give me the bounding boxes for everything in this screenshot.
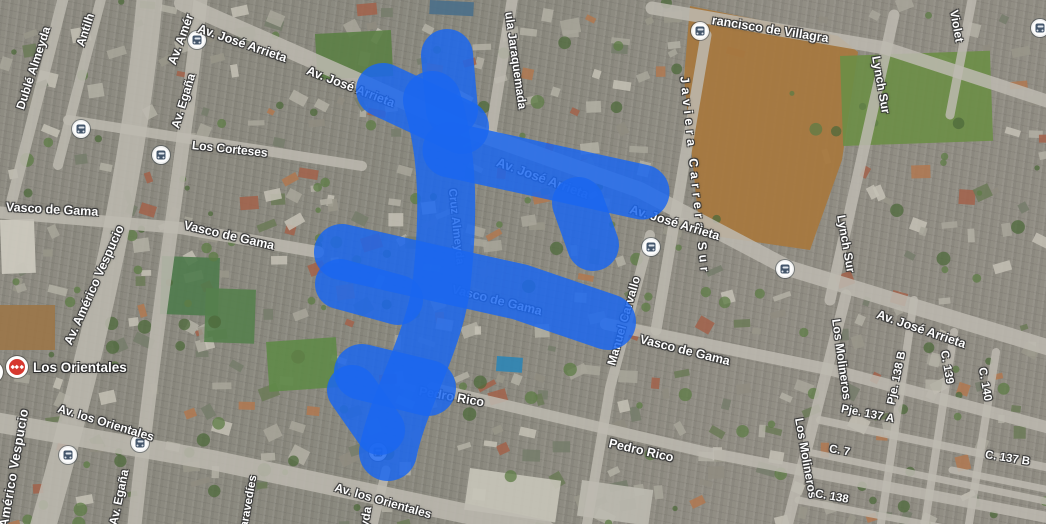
bus-stop-icon[interactable]	[1033, 21, 1046, 36]
bus-glyph	[157, 151, 166, 160]
bus-stop-icon[interactable]	[644, 240, 659, 255]
street-label: Vasco de Gama	[183, 219, 276, 252]
metro-logo-diamond	[20, 365, 24, 369]
bus-glyph	[1036, 24, 1045, 33]
street-label: Av. los Orientales	[333, 481, 432, 520]
street-label: Pje. 137 A	[840, 404, 895, 426]
street-label: Av. José Arrieta	[628, 203, 721, 242]
street-label: Pje. 138 B	[886, 350, 909, 406]
street-label: Av. Egaña	[107, 468, 131, 524]
street-label: C. 7	[828, 444, 851, 459]
street-label: Lynch Sur	[835, 214, 857, 273]
bus-stop-icon[interactable]	[61, 448, 76, 463]
street-label: Los Molineros	[830, 318, 853, 400]
metro-logo-diamond	[15, 365, 19, 369]
street-label: C. 140	[975, 367, 992, 402]
street-label: C. 137 B	[984, 450, 1031, 468]
street-label: Javiera Carrera Sur	[678, 76, 711, 277]
bus-stop-icon[interactable]	[371, 445, 386, 460]
bus-glyph	[647, 243, 656, 252]
street-label: Pedro Rico	[608, 437, 675, 464]
street-label: C. 139	[937, 350, 954, 385]
street-label: rancisco de Villagra	[711, 14, 829, 45]
bus-glyph	[696, 27, 705, 36]
bus-glyph	[77, 125, 86, 134]
street-label: C. 138	[814, 489, 849, 506]
street-label: Manuel Carvallo	[605, 275, 642, 367]
street-label: Los Molineros	[793, 417, 819, 499]
metro-station-icon[interactable]	[0, 361, 3, 383]
tree-texture	[11, 0, 1046, 524]
bus-glyph	[193, 36, 202, 45]
bus-stop-icon[interactable]	[778, 262, 793, 277]
bus-stop-icon[interactable]	[154, 148, 169, 163]
metro-logo-diamond	[11, 365, 15, 369]
street-label: Violet	[948, 9, 965, 43]
street-label: Lynch Sur	[870, 55, 892, 114]
street-label: Américo Vespucio	[0, 407, 30, 524]
street-label: Cruz Almeyda	[445, 188, 464, 265]
street-label: Los Corteses	[191, 139, 268, 159]
bus-glyph	[374, 448, 383, 457]
street-label: ula Jaraquemada	[503, 11, 529, 110]
street-label: Av. José Arrieta	[495, 155, 591, 200]
bus-stop-icon[interactable]	[693, 24, 708, 39]
street-label: aravedíes	[239, 474, 260, 524]
street-label: Antilh	[74, 12, 96, 48]
metro-station-icon[interactable]	[6, 356, 28, 378]
street-label: Av. Américo Vespucio	[62, 223, 126, 346]
street-label: Av. José Arrieta	[305, 64, 397, 109]
bus-glyph	[64, 451, 73, 460]
map-canvas[interactable]: Los Orientales Dublé AlmeydaAntilhAv. Am…	[0, 0, 1046, 524]
street-label: Av. los Orientales	[56, 402, 155, 443]
street-label: Av. José Arrieta	[875, 308, 967, 350]
street-label: yda	[358, 506, 373, 524]
metro-station-label: Los Orientales	[33, 360, 127, 375]
street-label: Pedro Rico	[418, 385, 485, 409]
street-label: Vasco de Gama	[638, 333, 731, 367]
street-label: Vasco de Gama	[6, 201, 99, 218]
street-label: Av. José Arrieta	[196, 22, 288, 64]
street-label: Vasco de Gama	[450, 283, 543, 317]
bus-stop-icon[interactable]	[74, 122, 89, 137]
street-label: Dublé Almeyda	[14, 25, 52, 111]
street-label: Av. Egaña	[169, 72, 197, 130]
bus-glyph	[781, 265, 790, 274]
metro-logo	[9, 359, 25, 375]
